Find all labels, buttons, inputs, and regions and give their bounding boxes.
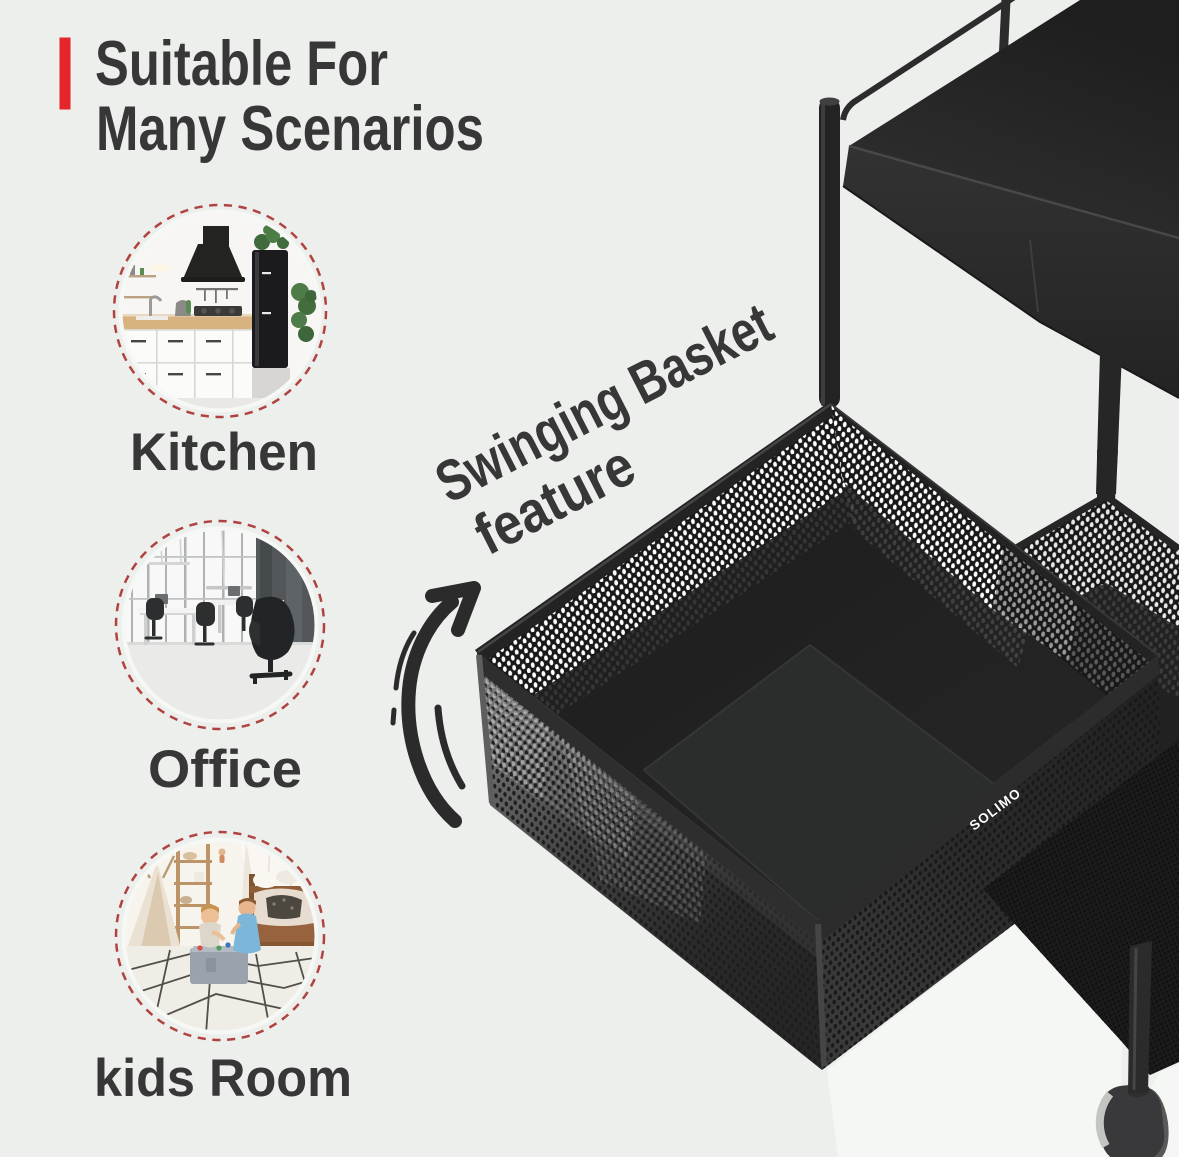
svg-text:Kitchen: Kitchen [130,423,318,482]
svg-text:kids Room: kids Room [94,1049,352,1108]
svg-text:Suitable For: Suitable For [95,29,388,99]
svg-text:Office: Office [148,740,302,799]
svg-text:Many Scenarios: Many Scenarios [96,94,484,164]
